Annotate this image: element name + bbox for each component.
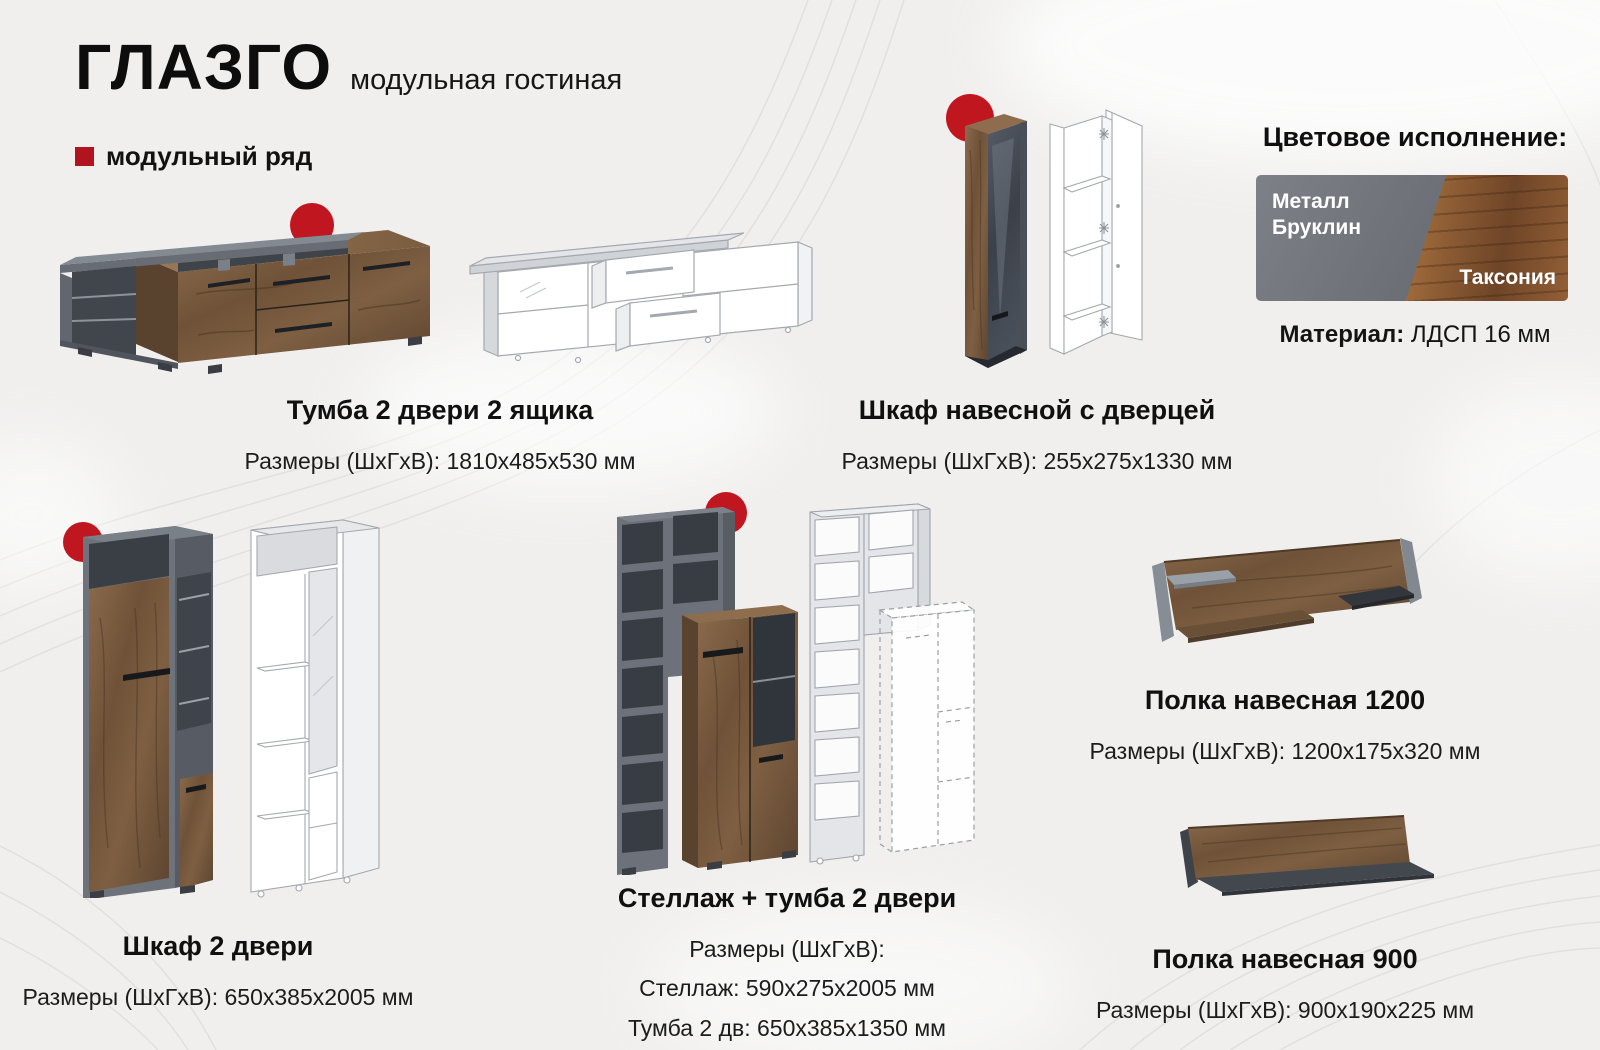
tall-cabinet-render	[80, 518, 220, 898]
product-dims: Размеры (ШхГхВ): 650х385х2005 мм	[0, 978, 436, 1018]
wall-cabinet-render	[962, 110, 1030, 378]
caption-polka-1200: Полка навесная 1200 Размеры (ШхГхВ): 120…	[1035, 684, 1535, 771]
product-dims: Размеры (ШхГхВ): 1810х485х530 мм	[190, 442, 690, 482]
page-subtitle: модульная гостиная	[350, 64, 622, 97]
caption-stellazh-tumba: Стеллаж + тумба 2 двери Размеры (ШхГхВ):…	[537, 882, 1037, 1048]
material-line: Материал: ЛДСП 16 мм	[1250, 321, 1580, 349]
wall-cabinet-wireframe	[1046, 96, 1146, 368]
tall-cabinet-wireframe	[247, 516, 387, 901]
wall-shelf-900-render	[1172, 814, 1437, 909]
shelving-cabinet-wireframe	[806, 500, 981, 865]
material-label: Материал:	[1279, 321, 1404, 348]
product-name: Полка навесная 1200	[1035, 684, 1535, 718]
product-name: Полка навесная 900	[1035, 943, 1535, 977]
product-dims: Стеллаж: 590х275х2005 мм	[537, 969, 1037, 1009]
finish-heading: Цветовое исполнение:	[1250, 122, 1580, 153]
shelving-cabinet-render	[612, 500, 802, 875]
header: ГЛАЗГО модульная гостиная	[75, 34, 622, 101]
product-name: Стеллаж + тумба 2 двери	[537, 882, 1037, 916]
caption-shkaf-2-dveri: Шкаф 2 двери Размеры (ШхГхВ): 650х385х20…	[0, 930, 436, 1017]
product-dims: Размеры (ШхГхВ): 1200х175х320 мм	[1035, 732, 1535, 772]
product-dims: Тумба 2 дв: 650х385х1350 мм	[537, 1009, 1037, 1049]
catalog-page: ГЛАЗГО модульная гостиная модульный ряд	[0, 0, 1600, 1050]
red-square-bullet	[75, 147, 94, 166]
tv-stand-wireframe	[468, 208, 818, 366]
product-dims: Размеры (ШхГхВ): 255х275х1330 мм	[787, 442, 1287, 482]
page-title: ГЛАЗГО	[75, 34, 332, 101]
finish-block: Цветовое исполнение: Металл Бруклин Такс…	[1250, 122, 1580, 349]
caption-polka-900: Полка навесная 900 Размеры (ШхГхВ): 900х…	[1035, 943, 1535, 1030]
product-name: Шкаф 2 двери	[0, 930, 436, 964]
product-name: Тумба 2 двери 2 ящика	[190, 394, 690, 428]
swatch-label-metal-brooklyn: Металл Бруклин	[1272, 189, 1392, 242]
tv-stand-render	[58, 210, 433, 375]
swatch-label-taxonia: Таксония	[1459, 265, 1556, 291]
product-name: Шкаф навесной с дверцей	[787, 394, 1287, 428]
product-dims: Размеры (ШхГхВ):	[537, 930, 1037, 970]
material-value: ЛДСП 16 мм	[1411, 321, 1551, 348]
color-swatch: Металл Бруклин Таксония	[1256, 175, 1568, 301]
caption-tumba: Тумба 2 двери 2 ящика Размеры (ШхГхВ): 1…	[190, 394, 690, 481]
wall-shelf-1200-render	[1142, 536, 1432, 664]
series-label: модульный ряд	[75, 141, 312, 172]
series-label-text: модульный ряд	[106, 141, 312, 172]
caption-shkaf-navesnoy: Шкаф навесной с дверцей Размеры (ШхГхВ):…	[787, 394, 1287, 481]
product-dims: Размеры (ШхГхВ): 900х190х225 мм	[1035, 991, 1535, 1031]
